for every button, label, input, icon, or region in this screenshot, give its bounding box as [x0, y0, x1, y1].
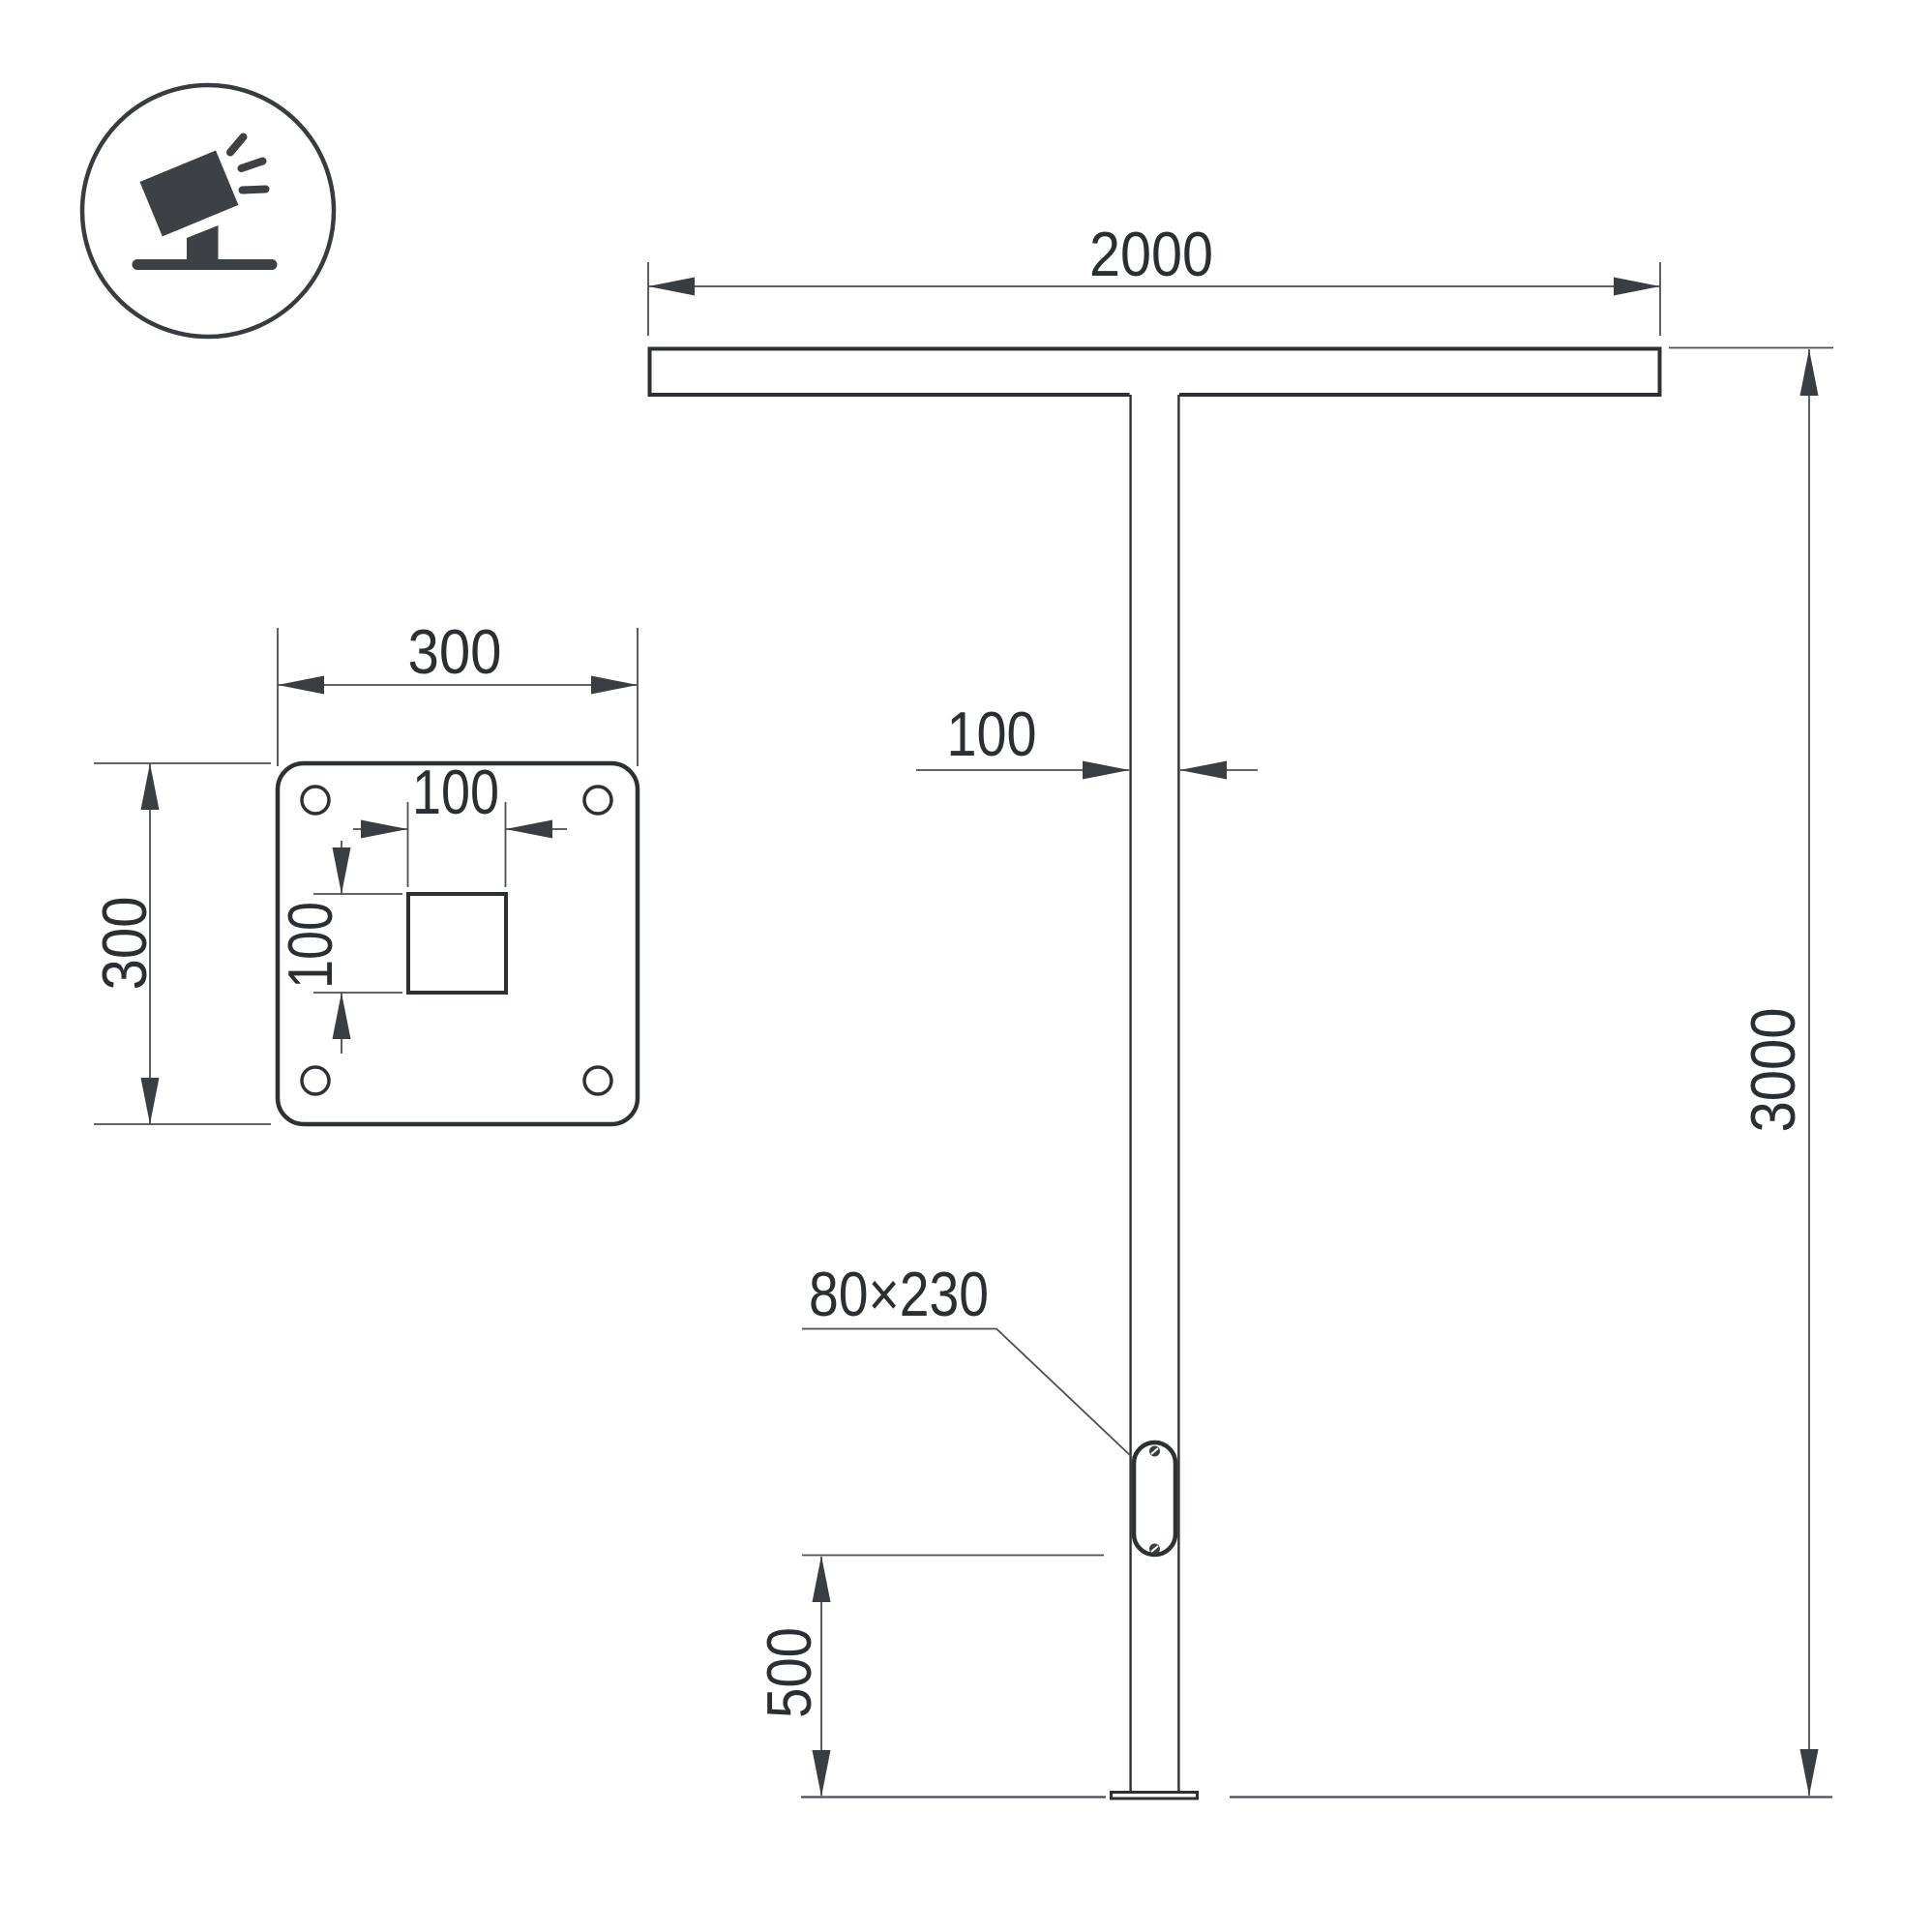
svg-text:500: 500 [754, 1627, 824, 1718]
svg-text:100: 100 [412, 757, 499, 827]
svg-text:300: 300 [408, 616, 502, 687]
svg-text:2000: 2000 [1089, 219, 1213, 289]
svg-text:300: 300 [89, 897, 160, 991]
svg-text:100: 100 [947, 698, 1037, 769]
svg-text:100: 100 [275, 902, 345, 989]
svg-text:3000: 3000 [1738, 1008, 1808, 1133]
svg-text:80×230: 80×230 [809, 1259, 989, 1329]
